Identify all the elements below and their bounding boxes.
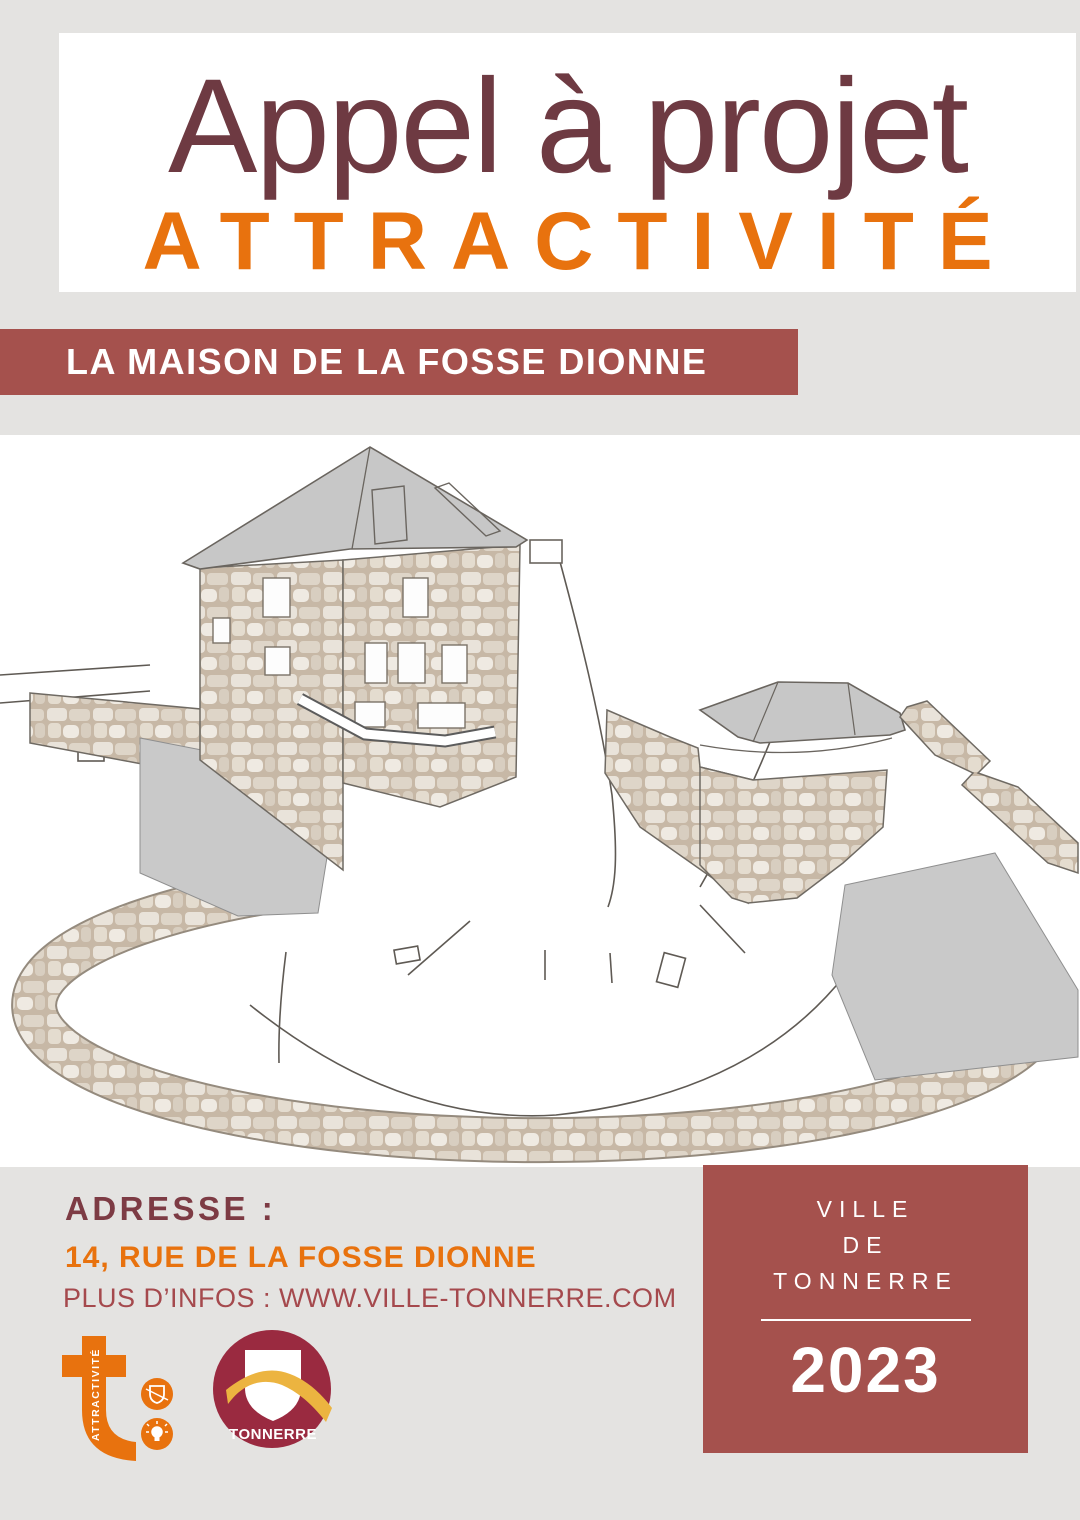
illustration-area bbox=[0, 435, 1080, 1167]
address-value: 14, RUE DE LA FOSSE DIONNE bbox=[65, 1241, 537, 1275]
pavilion bbox=[700, 682, 905, 903]
stone-ramp bbox=[900, 701, 1078, 873]
project-banner: LA MAISON DE LA FOSSE DIONNE bbox=[0, 329, 798, 395]
city-line-2: DE bbox=[703, 1227, 1028, 1263]
poster-title: Appel à projet bbox=[59, 33, 1076, 203]
title-card: Appel à projet ATTRACTIVITÉ bbox=[59, 33, 1076, 292]
address-label: ADRESSE : bbox=[65, 1190, 276, 1228]
tonnerre-logo-label: TONNERRE bbox=[229, 1426, 317, 1443]
attractivite-logo: ATTRACTIVITÉ bbox=[62, 1336, 180, 1464]
city-line-1: VILLE bbox=[703, 1191, 1028, 1227]
year-label: 2023 bbox=[703, 1335, 1028, 1405]
house-sketch-illustration bbox=[0, 435, 1080, 1167]
poster-subtitle: ATTRACTIVITÉ bbox=[59, 203, 1076, 281]
pavilion-roof bbox=[700, 682, 905, 743]
city-line-3: TONNERRE bbox=[703, 1263, 1028, 1299]
attractivite-vertical-label: ATTRACTIVITÉ bbox=[89, 1349, 102, 1441]
tonnerre-logo: TONNERRE bbox=[212, 1328, 334, 1452]
ground-patch-right bbox=[832, 853, 1078, 1080]
city-year-box: VILLE DE TONNERRE 2023 bbox=[703, 1165, 1028, 1453]
divider-line bbox=[761, 1319, 971, 1321]
poster-page: Appel à projet ATTRACTIVITÉ LA MAISON DE… bbox=[0, 0, 1080, 1520]
banner-label: LA MAISON DE LA FOSSE DIONNE bbox=[0, 341, 707, 383]
infos-text: PLUS D’INFOS : WWW.VILLE-TONNERRE.COM bbox=[63, 1283, 677, 1314]
